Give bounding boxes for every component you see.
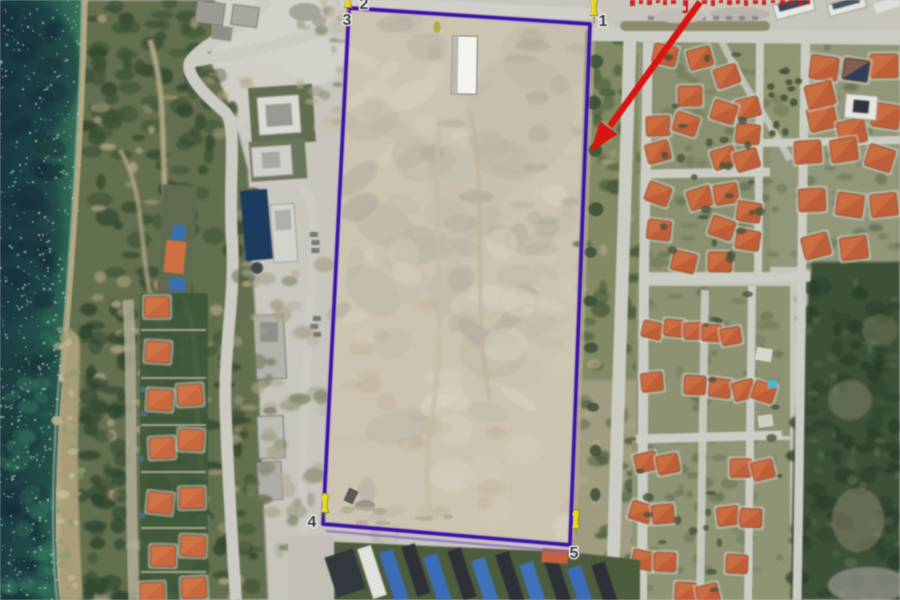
svg-text:4: 4	[308, 514, 317, 531]
svg-text:5: 5	[570, 545, 579, 562]
svg-text:1: 1	[599, 13, 608, 30]
svg-text:2: 2	[360, 0, 369, 13]
svg-text:3: 3	[343, 12, 352, 29]
